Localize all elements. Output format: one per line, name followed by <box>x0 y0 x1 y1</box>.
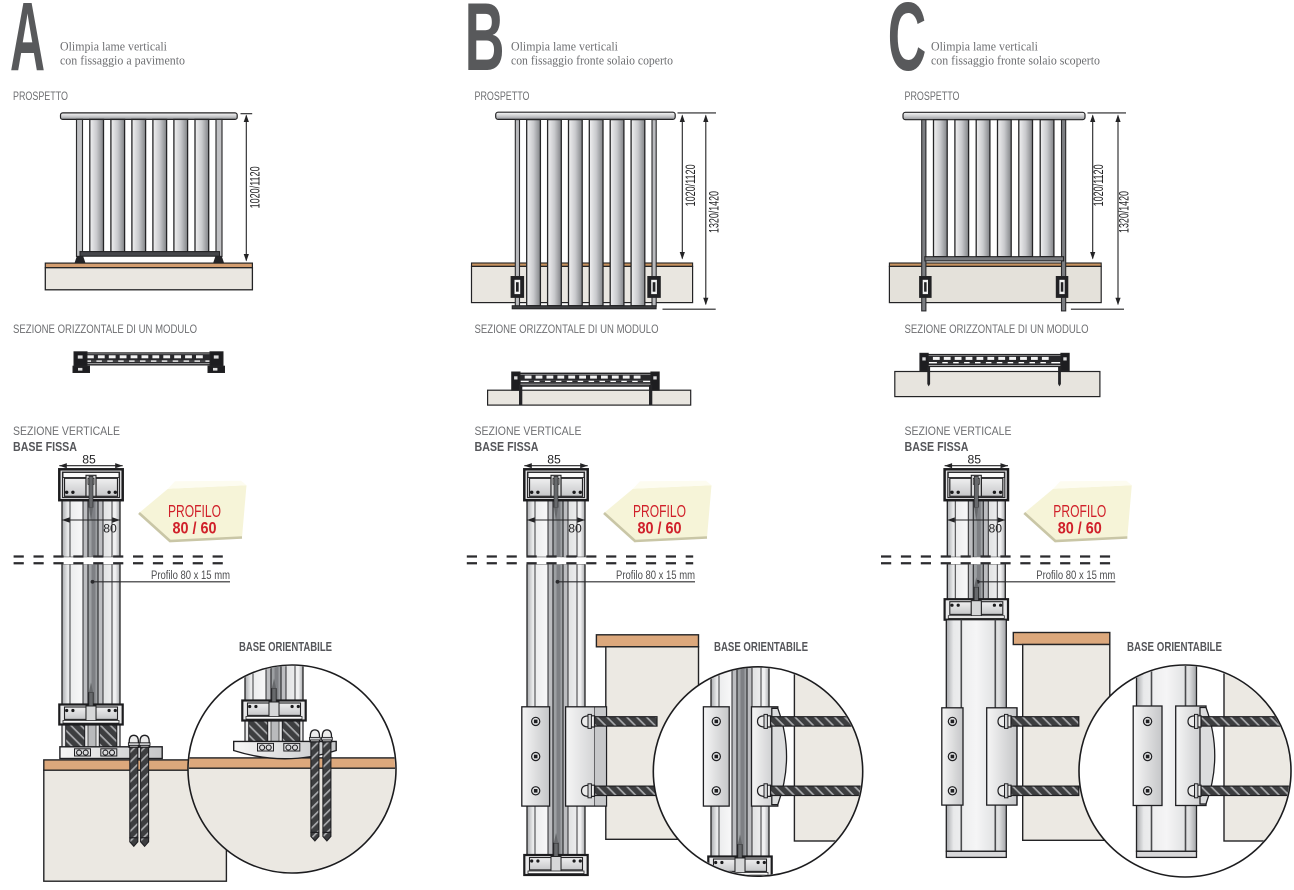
svg-text:PROSPETTO: PROSPETTO <box>905 89 960 103</box>
svg-text:SEZIONE VERTICALE: SEZIONE VERTICALE <box>13 424 120 438</box>
svg-text:1020/1120: 1020/1120 <box>683 164 699 206</box>
svg-text:con fissaggio fronte solaio sc: con fissaggio fronte solaio scoperto <box>931 54 1100 68</box>
svg-text:SEZIONE ORIZZONTALE DI UN MODU: SEZIONE ORIZZONTALE DI UN MODULO <box>475 322 659 336</box>
svg-text:BASE FISSA: BASE FISSA <box>475 439 539 454</box>
svg-text:Olimpia lame verticali: Olimpia lame verticali <box>931 40 1038 54</box>
svg-text:Profilo 80 x 15 mm: Profilo 80 x 15 mm <box>616 568 695 582</box>
svg-text:SEZIONE VERTICALE: SEZIONE VERTICALE <box>475 424 582 438</box>
svg-text:C: C <box>888 0 927 91</box>
svg-text:Profilo 80 x 15 mm: Profilo 80 x 15 mm <box>151 568 230 582</box>
svg-text:BASE FISSA: BASE FISSA <box>13 439 77 454</box>
svg-text:SEZIONE ORIZZONTALE DI UN MODU: SEZIONE ORIZZONTALE DI UN MODULO <box>905 322 1089 336</box>
svg-text:85: 85 <box>82 453 96 467</box>
svg-text:1320/1420: 1320/1420 <box>1116 191 1132 233</box>
svg-text:con fissaggio fronte solaio co: con fissaggio fronte solaio coperto <box>511 54 673 68</box>
svg-text:con fissaggio a pavimento: con fissaggio a pavimento <box>60 54 185 68</box>
svg-text:SEZIONE ORIZZONTALE DI UN MODU: SEZIONE ORIZZONTALE DI UN MODULO <box>13 322 197 336</box>
svg-text:80: 80 <box>103 522 117 536</box>
svg-text:BASE ORIENTABILE: BASE ORIENTABILE <box>1127 639 1222 654</box>
svg-text:85: 85 <box>968 453 982 467</box>
svg-text:BASE FISSA: BASE FISSA <box>905 439 969 454</box>
svg-text:BASE ORIENTABILE: BASE ORIENTABILE <box>239 639 332 654</box>
svg-text:1320/1420: 1320/1420 <box>706 191 722 233</box>
svg-text:80 / 60: 80 / 60 <box>1058 520 1102 538</box>
svg-text:80: 80 <box>568 522 582 536</box>
svg-text:PROFILO: PROFILO <box>168 501 221 521</box>
svg-text:BASE ORIENTABILE: BASE ORIENTABILE <box>714 639 808 654</box>
svg-text:B: B <box>465 0 505 91</box>
svg-text:PROFILO: PROFILO <box>633 501 686 521</box>
svg-text:1020/1120: 1020/1120 <box>1091 164 1107 206</box>
svg-text:Olimpia lame verticali: Olimpia lame verticali <box>511 40 618 54</box>
svg-text:A: A <box>10 0 45 92</box>
svg-text:80: 80 <box>989 522 1003 536</box>
svg-text:1020/1120: 1020/1120 <box>248 166 264 208</box>
svg-text:Profilo 80 x 15 mm: Profilo 80 x 15 mm <box>1036 568 1115 582</box>
svg-text:80 / 60: 80 / 60 <box>638 520 682 538</box>
svg-text:85: 85 <box>547 453 561 467</box>
svg-text:PROFILO: PROFILO <box>1053 501 1106 521</box>
svg-text:PROSPETTO: PROSPETTO <box>13 89 68 103</box>
svg-text:80 / 60: 80 / 60 <box>173 520 217 538</box>
svg-text:SEZIONE VERTICALE: SEZIONE VERTICALE <box>905 424 1012 438</box>
svg-text:Olimpia lame verticali: Olimpia lame verticali <box>60 40 167 54</box>
svg-text:PROSPETTO: PROSPETTO <box>475 89 530 103</box>
